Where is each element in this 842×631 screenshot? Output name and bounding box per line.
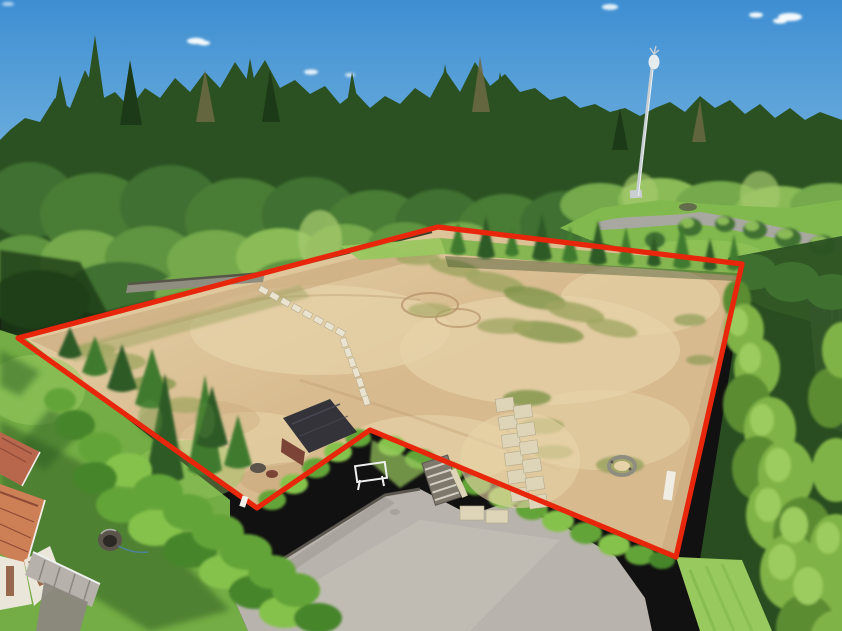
lamp-head (649, 55, 660, 70)
aerial-photo-canvas (0, 0, 842, 631)
dark-object-on-road (679, 203, 697, 211)
aerial-photo (0, 0, 842, 631)
